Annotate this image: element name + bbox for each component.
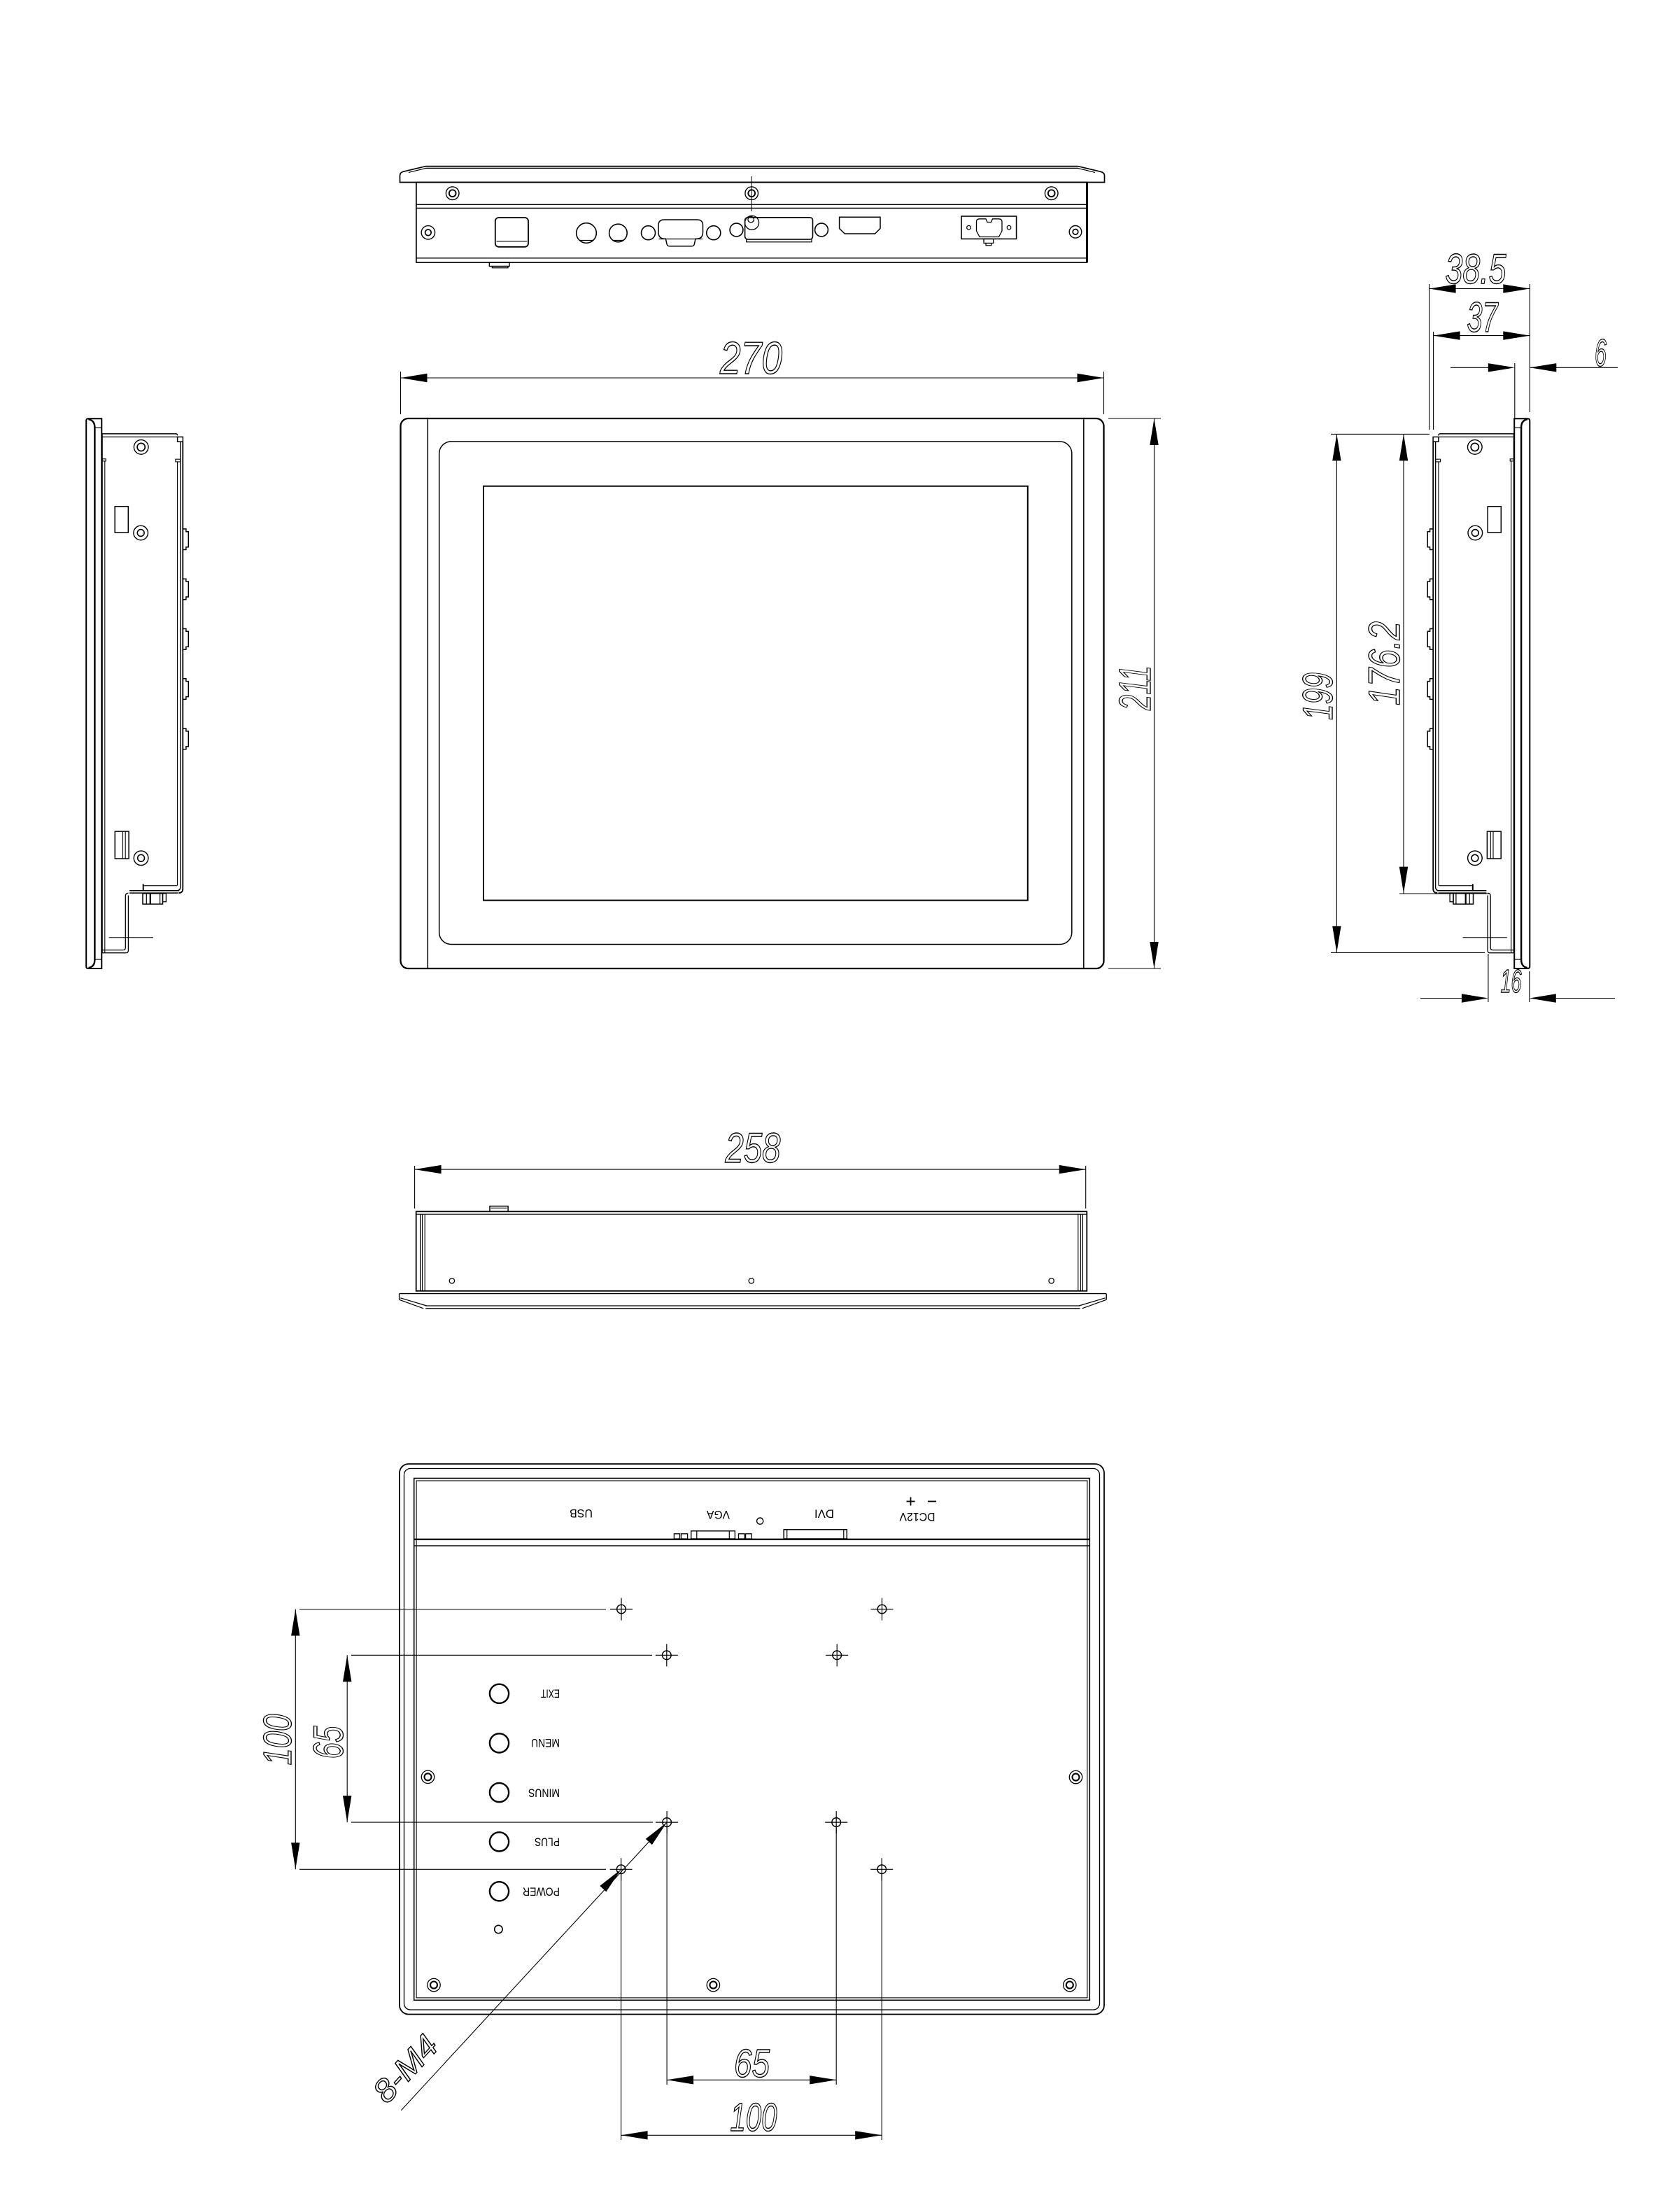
svg-text:16: 16 [1501, 963, 1522, 999]
svg-text:POWER: POWER [523, 1885, 560, 1898]
svg-text:6: 6 [1595, 331, 1607, 374]
svg-text:176.2: 176.2 [1360, 621, 1409, 705]
svg-text:270: 270 [719, 332, 782, 383]
svg-text:65: 65 [305, 1726, 352, 1759]
svg-text:DVI: DVI [814, 1507, 834, 1520]
svg-text:DC12V: DC12V [899, 1510, 936, 1523]
svg-text:EXIT: EXIT [541, 1686, 560, 1700]
svg-text:65: 65 [734, 2041, 770, 2086]
svg-text:USB: USB [570, 1507, 593, 1520]
svg-text:VGA: VGA [706, 1508, 730, 1521]
svg-text:258: 258 [725, 1125, 781, 1171]
svg-text:MINUS: MINUS [528, 1786, 560, 1799]
svg-text:100: 100 [255, 1714, 300, 1765]
svg-text:199: 199 [1294, 672, 1341, 720]
svg-text:100: 100 [730, 2095, 777, 2140]
svg-text:MENU: MENU [531, 1736, 560, 1749]
svg-text:38.5: 38.5 [1446, 246, 1506, 293]
svg-text:PLUS: PLUS [535, 1835, 560, 1848]
svg-text:211: 211 [1110, 665, 1160, 711]
svg-text:37: 37 [1467, 294, 1499, 341]
